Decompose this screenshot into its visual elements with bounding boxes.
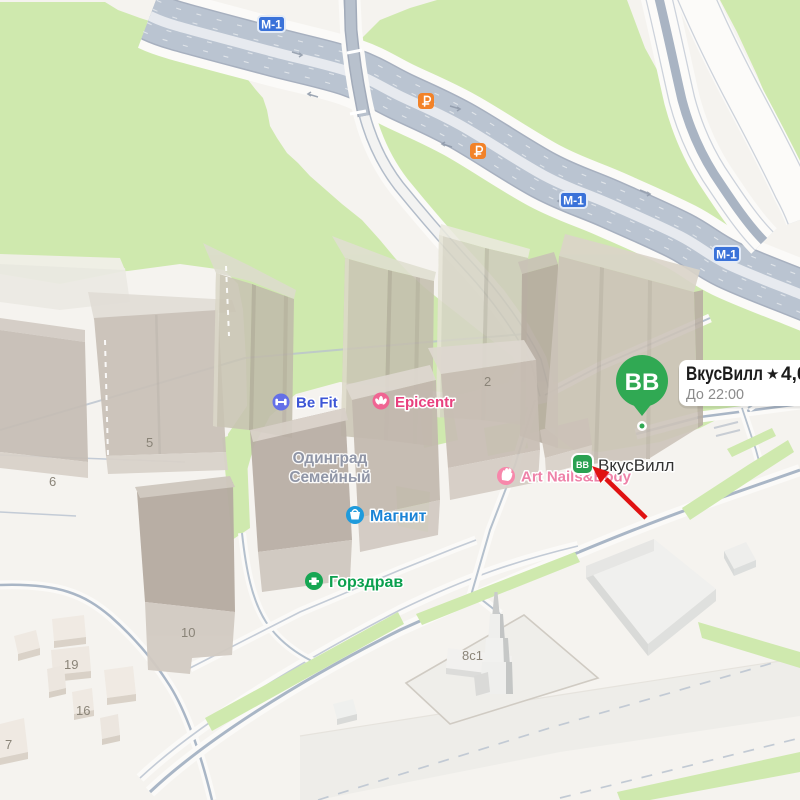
svg-text:2: 2 xyxy=(484,374,491,389)
svg-text:До 22:00: До 22:00 xyxy=(686,386,744,403)
svg-text:Одинград: Одинград xyxy=(293,450,368,467)
svg-text:8с1: 8с1 xyxy=(462,648,483,663)
svg-text:16: 16 xyxy=(76,703,90,718)
svg-text:7: 7 xyxy=(5,737,12,752)
svg-text:М-1: М-1 xyxy=(716,248,737,262)
svg-text:4,0: 4,0 xyxy=(781,364,800,385)
svg-text:ВкусВилл: ВкусВилл xyxy=(686,364,763,385)
svg-text:5: 5 xyxy=(146,435,153,450)
svg-text:10: 10 xyxy=(181,625,195,640)
svg-text:М-1: М-1 xyxy=(261,18,282,32)
svg-text:ВВ: ВВ xyxy=(576,460,589,470)
svg-text:Семейный: Семейный xyxy=(289,469,370,486)
svg-text:Epicentr: Epicentr xyxy=(395,394,455,411)
svg-text:ВВ: ВВ xyxy=(625,369,660,396)
svg-text:Магнит: Магнит xyxy=(370,508,427,525)
svg-text:★: ★ xyxy=(766,366,779,383)
svg-text:М-1: М-1 xyxy=(563,194,584,208)
svg-text:19: 19 xyxy=(64,657,78,672)
svg-text:Горздрав: Горздрав xyxy=(329,574,403,591)
svg-text:ВкусВилл: ВкусВилл xyxy=(598,456,674,475)
svg-text:Be Fit: Be Fit xyxy=(296,395,338,412)
svg-text:6: 6 xyxy=(49,474,56,489)
